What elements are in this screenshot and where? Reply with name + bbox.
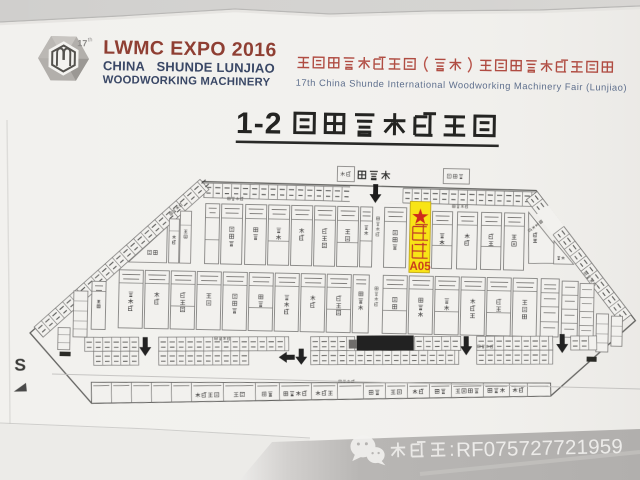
svg-text:A05: A05 [409, 261, 431, 273]
svg-text:1-2: 1-2 [236, 107, 283, 141]
svg-text:th: th [88, 37, 93, 43]
svg-text::: : [449, 439, 455, 461]
svg-text:17: 17 [77, 38, 87, 48]
svg-text:RF075727721959: RF075727721959 [456, 435, 623, 462]
svg-text:S: S [14, 355, 26, 375]
svg-text:CHINA SHUNDE LUNJIAO: CHINA SHUNDE LUNJIAO [103, 58, 275, 76]
